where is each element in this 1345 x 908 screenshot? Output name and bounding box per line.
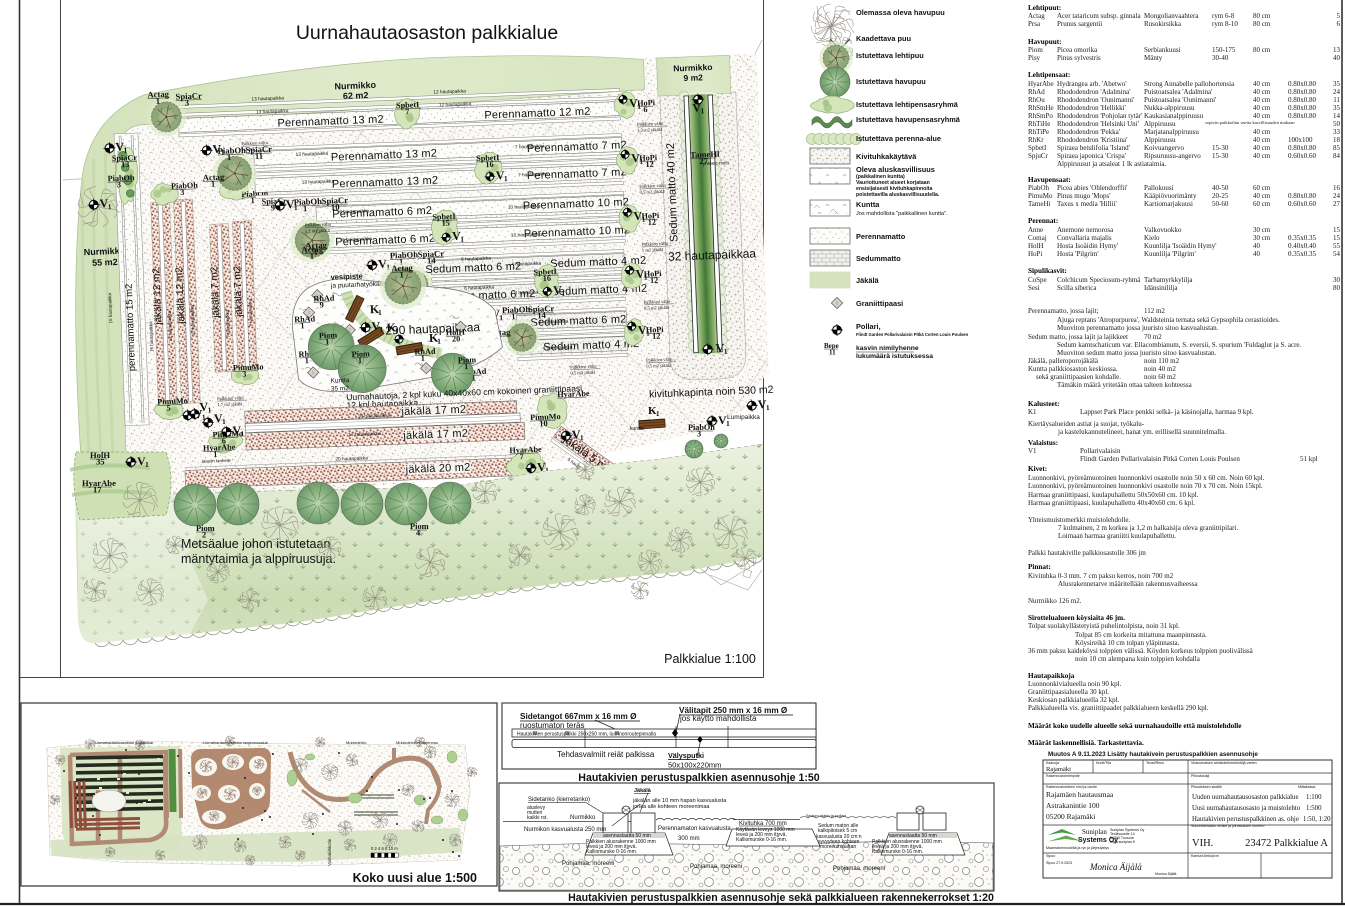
svg-text:1:50, 1:20: 1:50, 1:20: [1303, 816, 1331, 823]
svg-text:Sipoo: Sipoo: [1046, 854, 1055, 858]
svg-text:Jäkälä: Jäkälä: [634, 788, 652, 794]
svg-text:Rakennuskohteen nimi ja osoite: Rakennuskohteen nimi ja osoite: [1046, 785, 1097, 789]
svg-text:Muutos A 9.11.2023 Lisätty hau: Muutos A 9.11.2023 Lisätty hautakivein p…: [1048, 751, 1258, 758]
svg-text:Hautakivien perustuspalkki 250: Hautakivien perustuspalkki 250x250 mm, l…: [517, 732, 656, 738]
svg-text:Hautakivien perustuspalkkien a: Hautakivien perustuspalkkien asennusohje…: [578, 772, 819, 784]
svg-text:Viranomaisen arkistointimerkin: Viranomaisen arkistointimerkintöjä varte…: [1191, 761, 1257, 765]
svg-text:50x100x220mm: 50x100x220mm: [668, 761, 721, 770]
svg-text:Pohjamaa, moreeni: Pohjamaa, moreeni: [833, 866, 885, 872]
svg-text:Piirustuksen sisältö: Piirustuksen sisältö: [1191, 785, 1222, 789]
svg-text:Rakennustoimenpide: Rakennustoimenpide: [1046, 774, 1080, 778]
svg-text:Kalliomurske 0-16 mm.: Kalliomurske 0-16 mm.: [736, 837, 787, 843]
svg-text:Uuden uurnahautausosaston palk: Uuden uurnahautausosaston palkkialue: [1192, 794, 1298, 801]
svg-text:Tehdasvalmiit reiät palkissa: Tehdasvalmiit reiät palkissa: [557, 750, 655, 759]
svg-text:Kaavoja: Kaavoja: [1046, 761, 1059, 765]
svg-text:Rajamäki: Rajamäki: [1046, 766, 1071, 773]
svg-text:Rajamäen hautausmaa: Rajamäen hautausmaa: [1046, 790, 1114, 799]
svg-text:Sidetangot 667mm x 16 mm Ø: Sidetangot 667mm x 16 mm Ø: [520, 712, 637, 721]
svg-text:Pohjamaa, moreeni: Pohjamaa, moreeni: [690, 864, 742, 870]
svg-text:kaikki rst.: kaikki rst.: [527, 815, 548, 821]
svg-text:Suniplan: Suniplan: [1082, 828, 1107, 836]
svg-text:0 2 4 6 8 10 m: 0 2 4 6 8 10 m: [371, 846, 398, 851]
svg-text:Hautakivien perustuspalkkinen: Hautakivien perustuspalkkinen as. ohje: [1192, 816, 1299, 823]
svg-text:Hautakivien perustuspalkkien a: Hautakivien perustuspalkkien asennusohje…: [568, 892, 994, 904]
svg-text:Teost/Reso: Teost/Reso: [1146, 761, 1164, 765]
svg-text:Sidetanko (kierretanko): Sidetanko (kierretanko): [528, 797, 590, 803]
svg-text:moreenimaahan: moreenimaahan: [820, 844, 856, 850]
svg-text:Suunnittelualan nimike ja piir: Suunnittelualan nimike ja piirustuksen n…: [1191, 824, 1264, 828]
svg-text:Monica Äijälä: Monica Äijälä: [1089, 862, 1142, 872]
svg-text:Kalliomurske 0-16 mm.: Kalliomurske 0-16 mm.: [586, 849, 637, 855]
svg-text:Välysputki: Välysputki: [668, 751, 704, 760]
svg-text:Kalliomurske 0-16 mm.: Kalliomurske 0-16 mm.: [872, 849, 923, 855]
svg-text:23472 Palkkialue A: 23472 Palkkialue A: [1245, 838, 1328, 849]
svg-text:Nurmikon kasvualusta 250 mm: Nurmikon kasvualusta 250 mm: [524, 827, 606, 833]
svg-text:www.suniplan.fi: www.suniplan.fi: [1110, 840, 1135, 844]
svg-text:Monica Äijälä: Monica Äijälä: [1155, 872, 1176, 876]
svg-text:Pohjamaa, moreeni: Pohjamaa, moreeni: [562, 861, 614, 867]
svg-text:Astrakanintie 100: Astrakanintie 100: [1046, 801, 1100, 810]
svg-text:Uusi uurnahautausosasto ja mui: Uusi uurnahautausosasto ja muistolehto: [1192, 805, 1301, 812]
svg-text:Piirustuslaji: Piirustuslaji: [1191, 774, 1209, 778]
svg-text:Maanrakennustöitä ja ryn ja jä: Maanrakennustöitä ja ryn ja järjestystys: [1046, 846, 1109, 850]
svg-text:VIH.: VIH.: [1192, 838, 1213, 849]
svg-text:Koko uusi alue 1:500: Koko uusi alue 1:500: [353, 871, 477, 885]
svg-text:Mittakaava: Mittakaava: [1298, 785, 1315, 789]
svg-text:Nurmikko: Nurmikko: [570, 815, 596, 821]
svg-text:1:500: 1:500: [1306, 805, 1322, 812]
svg-text:Perennamaton kasvualusta: Perennamaton kasvualusta: [658, 826, 731, 832]
svg-text:300 mm: 300 mm: [678, 836, 700, 842]
svg-text:Sedum matto ja pollari: Sedum matto ja pollari: [806, 813, 846, 818]
svg-text:1:100: 1:100: [1306, 794, 1322, 801]
svg-text:jonka alle kohteen moreenimaa: jonka alle kohteen moreenimaa: [632, 804, 710, 810]
svg-text:Kuntt/Tila: Kuntt/Tila: [1096, 761, 1111, 765]
svg-text:Kamurk.tieto/pvm: Kamurk.tieto/pvm: [1191, 854, 1219, 858]
svg-text:Sipoo 27.9.2023: Sipoo 27.9.2023: [1046, 861, 1072, 865]
svg-text:05200 Rajamäki: 05200 Rajamäki: [1046, 812, 1095, 821]
svg-text:Vanhakirkkotie: Vanhakirkkotie: [327, 838, 332, 866]
